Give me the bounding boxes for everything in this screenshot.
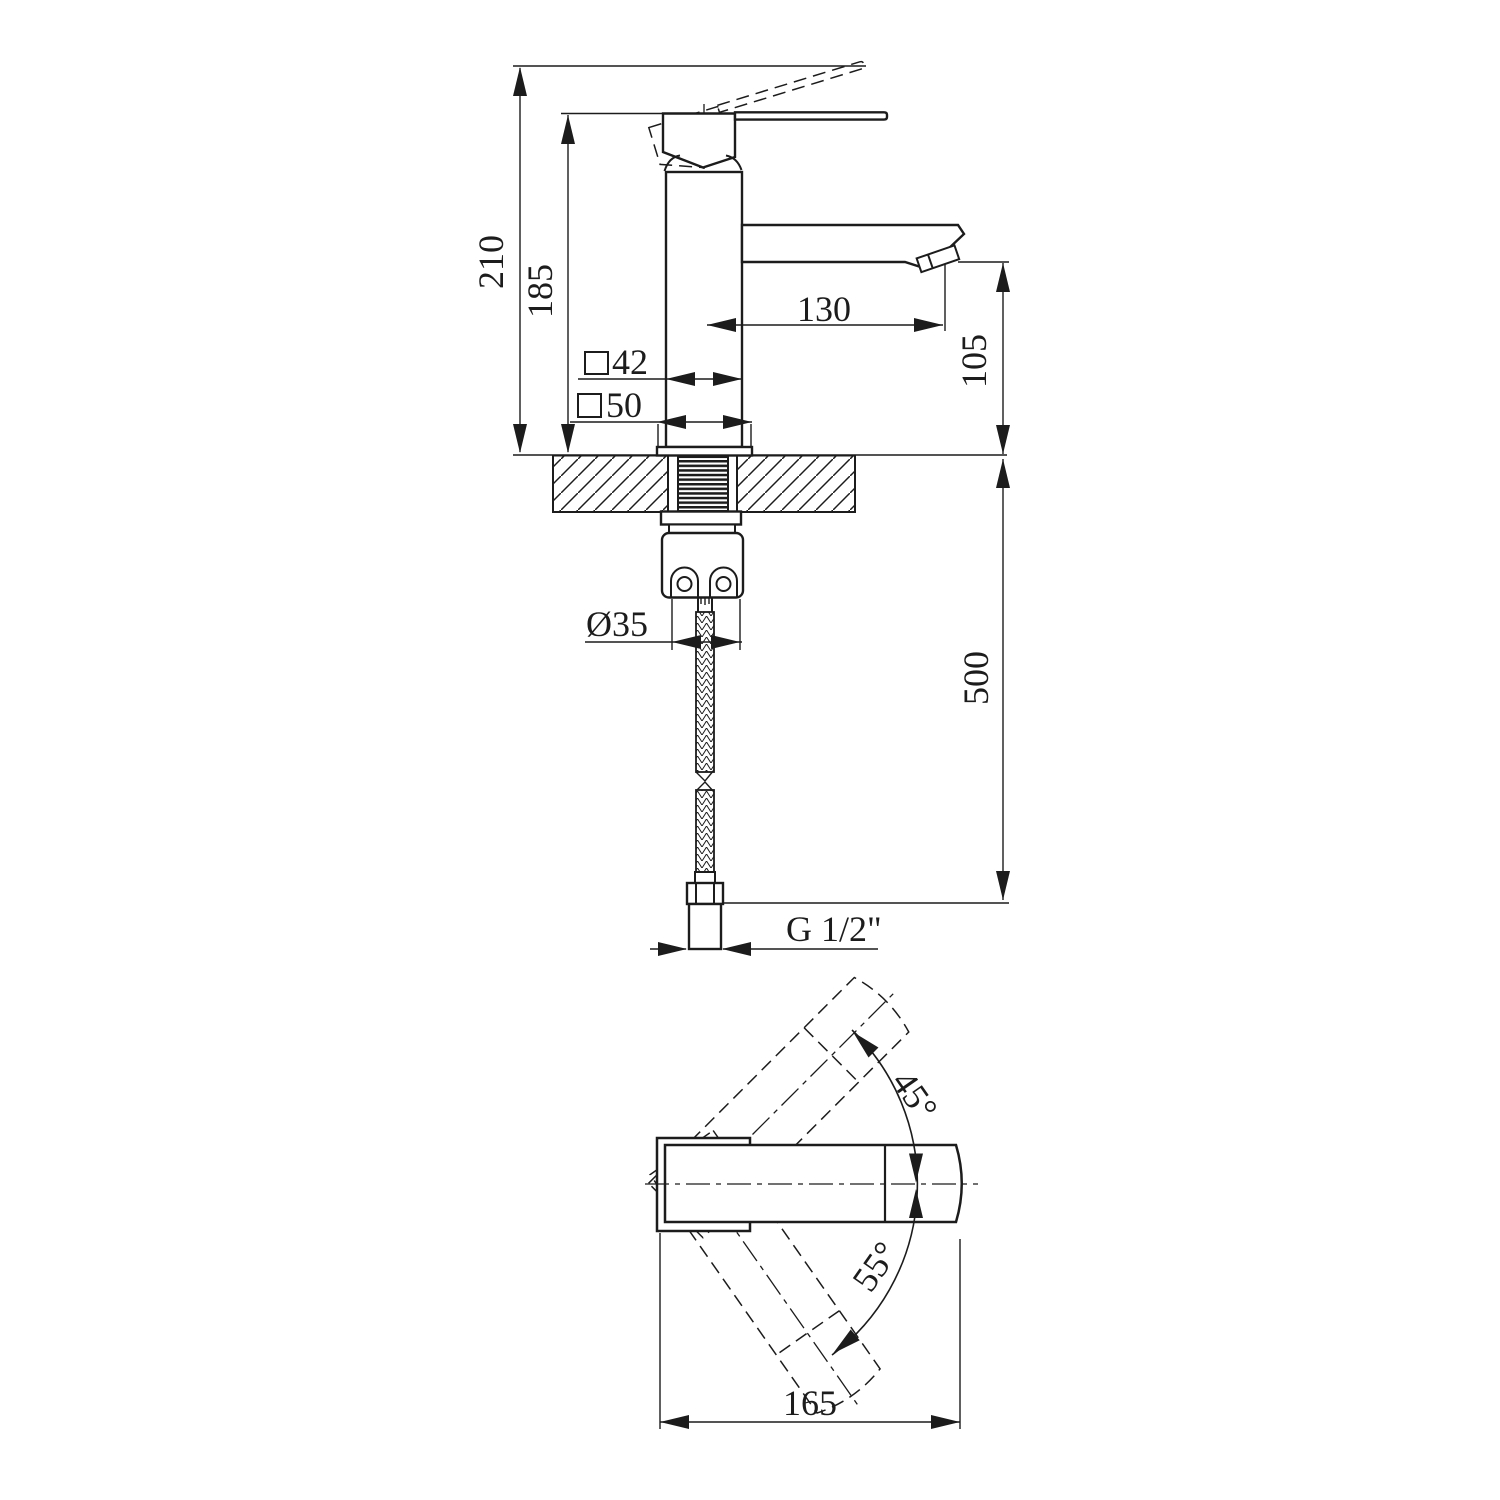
faucet-body xyxy=(666,172,742,447)
dim-50-label: 50 xyxy=(606,385,642,425)
handle-lever xyxy=(735,112,887,119)
countertop-left xyxy=(553,456,668,513)
collar xyxy=(669,525,735,534)
dim-35-label: Ø35 xyxy=(586,604,648,644)
handle-base xyxy=(663,114,735,168)
dimension-g12: G 1/2" xyxy=(650,909,882,956)
angle-45-label: 45° xyxy=(884,1063,946,1127)
threaded-shank xyxy=(678,457,728,511)
dimension-105: 105 xyxy=(954,263,1010,454)
mounting-flange xyxy=(657,447,752,456)
dim-42-label: 42 xyxy=(612,342,648,382)
square-symbol-42 xyxy=(585,352,608,374)
angle-55-label: 55° xyxy=(844,1234,906,1298)
dim-165-label: 165 xyxy=(783,1383,837,1423)
front-view: 210 185 130 105 42 xyxy=(471,61,1010,956)
dimension-35: Ø35 xyxy=(585,604,742,649)
hose-braid-lower xyxy=(696,790,714,872)
top-view: 45° 55° 165 xyxy=(638,966,978,1429)
dimension-500: 500 xyxy=(956,459,1010,900)
hose-nut xyxy=(687,883,723,904)
supply-hose xyxy=(687,597,723,949)
countertop-right xyxy=(737,456,855,513)
dimension-210: 210 xyxy=(471,67,527,453)
faucet-technical-drawing: 210 185 130 105 42 xyxy=(0,0,1500,1500)
dim-130-label: 130 xyxy=(797,289,851,329)
hose-thread-end xyxy=(689,904,721,949)
dim-500-label: 500 xyxy=(956,651,996,705)
hose-ferrule xyxy=(695,872,715,883)
dimension-165: 165 xyxy=(660,1233,960,1429)
dim-105-label: 105 xyxy=(954,334,994,388)
drawing-canvas: 210 185 130 105 42 xyxy=(0,0,1500,1500)
dim-g12-label: G 1/2" xyxy=(786,909,882,949)
dim-210-label: 210 xyxy=(471,235,511,289)
mounting-bracket xyxy=(662,533,743,598)
locknut xyxy=(661,512,741,525)
dimension-185: 185 xyxy=(520,115,575,453)
dim-185-label: 185 xyxy=(520,264,560,318)
square-symbol-50 xyxy=(578,394,601,417)
